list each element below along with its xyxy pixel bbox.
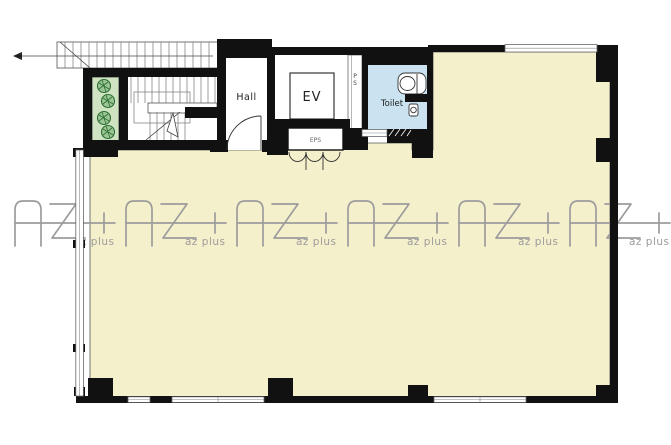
watermark-text: az plus [185, 236, 226, 248]
toilet-label: Toilet [380, 99, 404, 109]
wall-segment [267, 47, 275, 155]
column-block [408, 385, 428, 403]
column-block [268, 378, 293, 403]
wall-segment [119, 77, 128, 140]
wall-segment [217, 50, 226, 150]
wall-segment [405, 94, 427, 102]
wall-segment [210, 140, 228, 152]
column-block [88, 378, 113, 403]
column-block [85, 140, 118, 157]
column-block [596, 138, 618, 162]
watermark-text: az plus [518, 236, 559, 248]
watermark-text: az plus [629, 236, 670, 248]
wall-segment [267, 119, 350, 128]
wall-segment [262, 140, 275, 152]
watermark-text: az plus [407, 236, 448, 248]
wall-segment [387, 129, 412, 143]
elevator-label: EV [302, 90, 321, 105]
sink-icon [409, 104, 418, 116]
eps-label: EPS [310, 137, 321, 144]
wall-segment [362, 47, 433, 65]
wall-segment [83, 68, 223, 77]
ps-duct [348, 55, 362, 133]
stair-direction-arrow [13, 52, 22, 60]
ps-label: PS [352, 73, 359, 87]
wall-segment [76, 396, 618, 403]
hall-label: Hall [236, 92, 256, 103]
wall-segment [217, 39, 272, 58]
floor-plan-drawing: az plus az plus az plus az plus [0, 0, 671, 445]
external-staircase [13, 42, 218, 68]
wall-segment [427, 47, 433, 135]
watermark-text: az plus [296, 236, 337, 248]
floor-plan-canvas: az plus az plus az plus az plus [0, 0, 671, 445]
toilet-fixture-icon [398, 73, 426, 94]
planter-strip [92, 77, 119, 143]
wall-segment [83, 68, 92, 152]
wall-segment [267, 47, 368, 55]
wall-segment [275, 128, 288, 155]
wall-segment [412, 129, 433, 158]
wall-segment [610, 45, 618, 403]
